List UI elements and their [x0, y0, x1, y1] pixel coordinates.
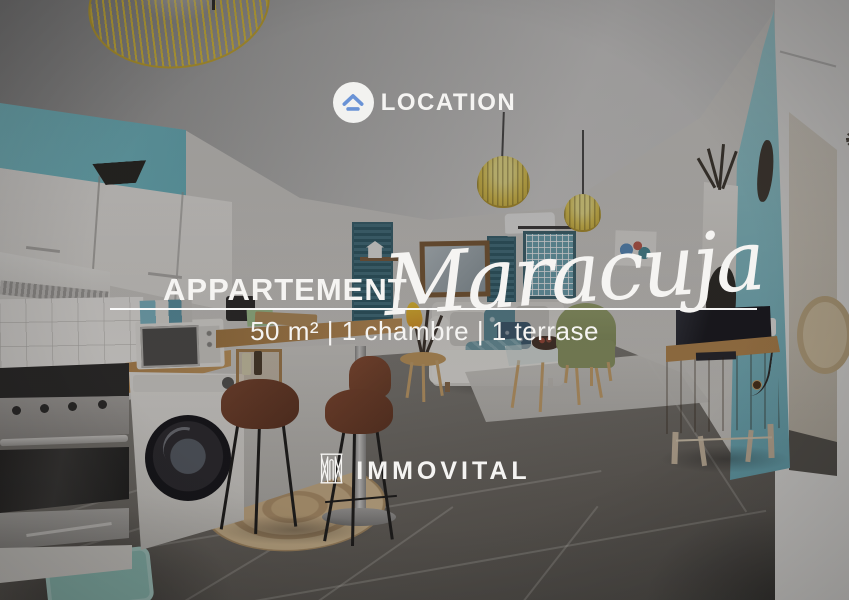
property-type-label: APPARTEMENT [163, 272, 408, 308]
property-specs: 50 m² | 1 chambre | 1 terrase [0, 316, 849, 347]
gate-emblem-icon [318, 452, 345, 490]
listing-card: LOCATION APPARTEMENT Maracuja 50 m² | 1 … [0, 0, 849, 600]
brand-logo: IMMOVITAL [0, 452, 849, 490]
house-icon [340, 90, 366, 116]
brand-label: IMMOVITAL [356, 457, 530, 486]
house-circle-icon [333, 82, 374, 123]
property-name: Maracuja [381, 218, 766, 328]
location-label: LOCATION [381, 89, 517, 117]
location-badge: LOCATION [0, 82, 849, 123]
text-overlay: LOCATION APPARTEMENT Maracuja 50 m² | 1 … [0, 0, 849, 600]
